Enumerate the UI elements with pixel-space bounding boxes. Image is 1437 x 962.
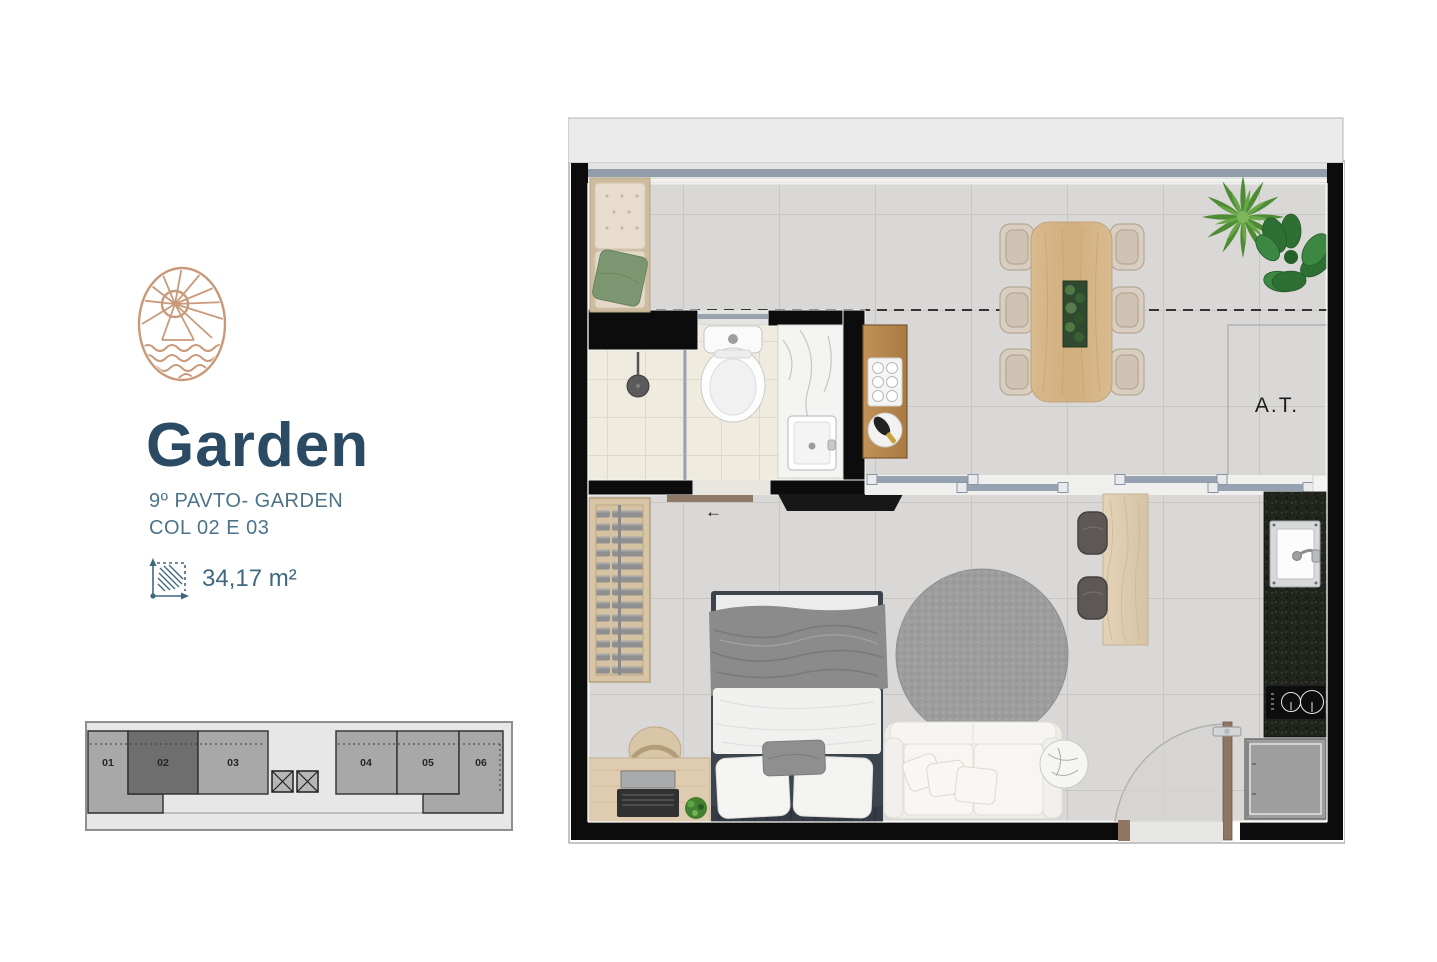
laptop: [617, 771, 679, 817]
entry-door-leaf: [1223, 722, 1232, 840]
key-plan-label-04: 04: [360, 757, 372, 769]
unit-subtitle-line1: 9º PAVTO- GARDEN: [149, 488, 343, 515]
cooktop: [1266, 686, 1325, 719]
bathroom-sliding-door: [667, 495, 753, 502]
key-plan-label-03: 03: [227, 757, 239, 769]
entry-threshold: [1130, 822, 1223, 842]
area-dimensions-icon: [146, 556, 190, 602]
floor-plan: A.T.: [568, 110, 1345, 852]
bathroom-door-opening: [693, 480, 770, 495]
unit-title: Garden: [146, 410, 369, 481]
bar-console: [863, 325, 907, 458]
shower-floor: [588, 350, 683, 480]
unit-area-row: 34,17 m²: [146, 556, 297, 602]
bed-blanket: [709, 604, 888, 696]
bathroom-vanity: [778, 325, 843, 478]
desk-plant: [685, 797, 707, 819]
technical-area-label: A.T.: [1255, 394, 1299, 417]
accent-bench: [590, 178, 650, 312]
tv: [778, 494, 903, 511]
green-pillow: [591, 249, 648, 308]
unit-subtitle: 9º PAVTO- GARDEN COL 02 E 03: [149, 488, 343, 542]
sliding-glass-doors: [865, 475, 1327, 496]
dining-set: [1000, 222, 1144, 402]
balcony-band: [568, 118, 1343, 163]
front-window-wall: [588, 163, 1327, 183]
page: Garden 9º PAVTO- GARDEN COL 02 E 03: [0, 0, 1437, 962]
unit-subtitle-line2: COL 02 E 03: [149, 515, 343, 542]
toilet: [701, 326, 765, 422]
key-plan-label-01: 01: [102, 757, 114, 769]
key-plan-label-05: 05: [422, 757, 434, 769]
marble-side-table: [1040, 740, 1088, 788]
bathroom: ←: [585, 310, 865, 521]
key-plan-label-02: 02: [157, 757, 169, 769]
door-slide-arrow: ←: [705, 502, 722, 521]
throw-pillow: [762, 740, 825, 776]
brand-logo: [136, 264, 230, 386]
kitchen-sink: [1270, 521, 1320, 587]
bathroom-window: [698, 310, 768, 324]
wardrobe: [589, 498, 650, 682]
round-rug: [896, 569, 1068, 741]
key-plan-label-06: 06: [475, 757, 487, 769]
kitchen-island: [1103, 494, 1148, 645]
sofa: [884, 722, 1062, 819]
entry-door-frame: [1118, 820, 1130, 841]
refrigerator: [1245, 739, 1326, 819]
key-plan: 01 02 03 04 05 06: [80, 713, 520, 837]
table-planter: [1063, 281, 1087, 347]
unit-area-value: 34,17 m²: [202, 565, 297, 593]
bed: [709, 591, 888, 828]
